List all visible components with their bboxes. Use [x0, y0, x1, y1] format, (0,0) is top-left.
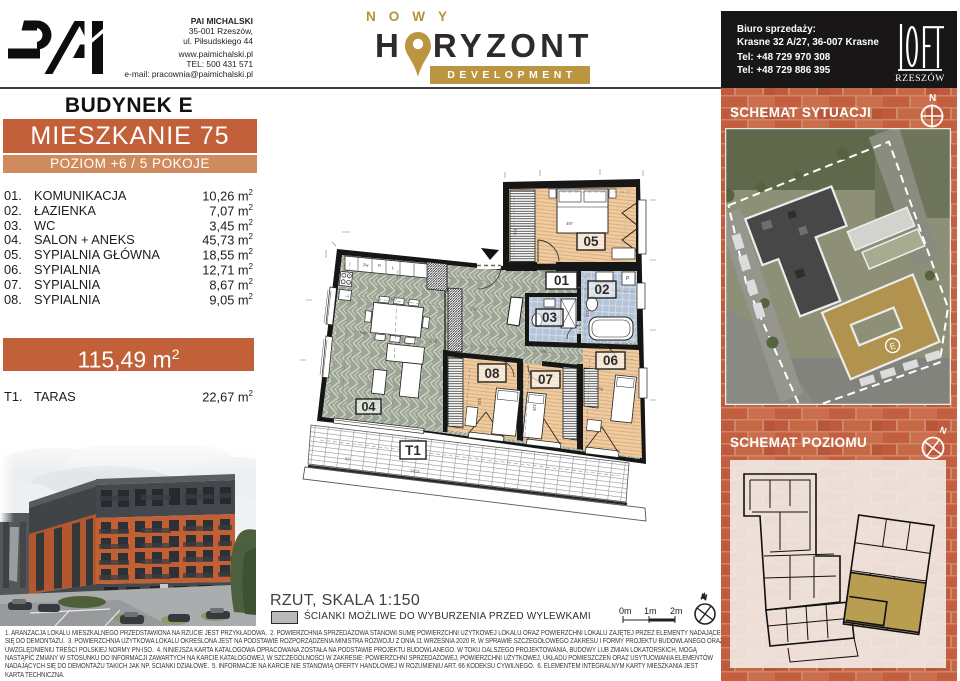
- svg-text:N: N: [938, 425, 948, 437]
- svg-text:04: 04: [362, 400, 376, 414]
- svg-text:215: 215: [430, 338, 438, 344]
- svg-text:259: 259: [596, 386, 604, 392]
- svg-text:03: 03: [542, 310, 558, 325]
- svg-text:01: 01: [554, 273, 570, 288]
- svg-text:249: 249: [540, 348, 548, 354]
- svg-text:226: 226: [470, 306, 478, 312]
- svg-text:346: 346: [513, 228, 518, 236]
- svg-text:325: 325: [532, 404, 537, 412]
- svg-text:T1: T1: [405, 443, 421, 458]
- svg-text:07: 07: [538, 372, 553, 387]
- svg-text:0m: 0m: [619, 606, 632, 616]
- svg-text:2m: 2m: [670, 606, 683, 616]
- svg-text:08: 08: [484, 366, 500, 381]
- svg-text:313: 313: [585, 310, 590, 318]
- svg-text:05: 05: [583, 234, 599, 249]
- svg-text:06: 06: [603, 353, 619, 368]
- svg-text:Zw: Zw: [363, 262, 369, 268]
- svg-text:447: 447: [390, 296, 398, 302]
- svg-text:RZESZÓW: RZESZÓW: [895, 72, 945, 83]
- svg-text:325: 325: [477, 398, 482, 406]
- svg-text:N: N: [929, 93, 936, 104]
- svg-text:497: 497: [566, 221, 574, 226]
- svg-text:1m: 1m: [644, 606, 657, 616]
- svg-text:02: 02: [594, 282, 609, 297]
- svg-text:642: 642: [360, 330, 368, 336]
